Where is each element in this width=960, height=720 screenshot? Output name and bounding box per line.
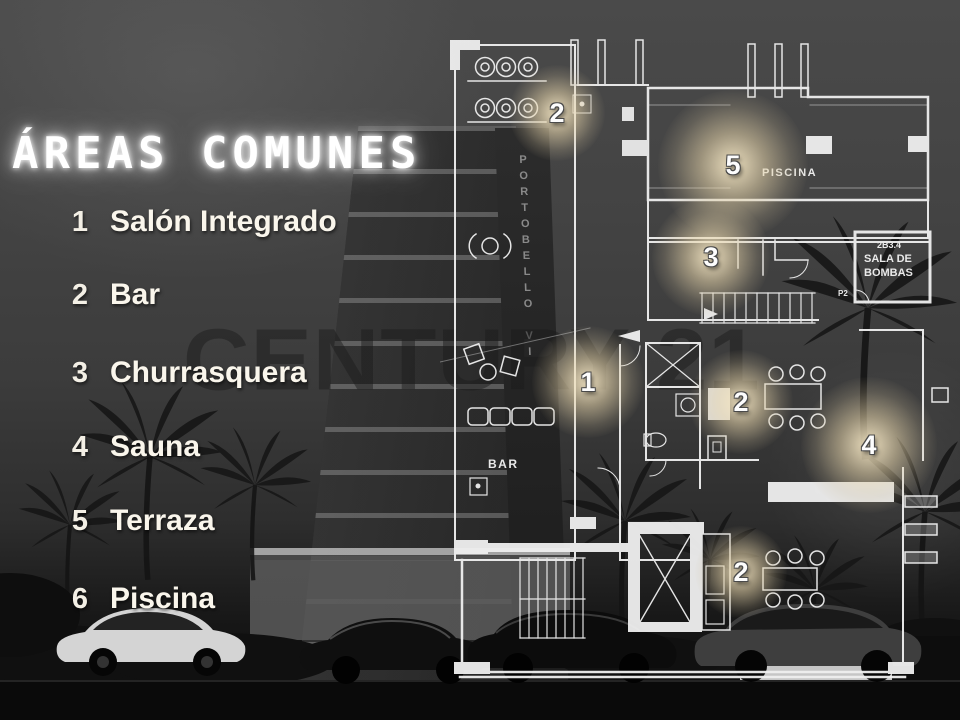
legend-label: Terraza — [110, 504, 215, 538]
legend-item-piscina: 6 Piscina — [48, 582, 215, 616]
legend-number: 3 — [48, 357, 88, 390]
slide-areas-comunes: PORTOBELLO VI — [0, 0, 960, 720]
page-title: ÁREAS COMUNES — [12, 128, 421, 179]
marker-sauna: 4 — [801, 377, 937, 513]
legend-number: 2 — [48, 279, 88, 312]
legend-label: Bar — [110, 278, 160, 312]
label-bar: BAR — [488, 457, 519, 471]
legend-number: 1 — [48, 206, 88, 239]
legend-label: Piscina — [110, 582, 215, 616]
marker-churrasquera: 3 — [652, 198, 770, 316]
marker-bar-bottom: 2 — [695, 526, 787, 618]
label-sala-number: 2B3.4 — [877, 240, 901, 250]
label-sala-line2: BOMBAS — [864, 267, 913, 279]
legend-number: 4 — [48, 431, 88, 464]
legend-item-salon: 1 Salón Integrado — [48, 205, 337, 239]
legend-number: 6 — [48, 583, 88, 616]
legend-number: 5 — [48, 505, 88, 538]
marker-salon-integrado: 1 — [532, 326, 644, 438]
label-sala-line1: SALA DE — [864, 253, 912, 265]
legend-label: Salón Integrado — [110, 205, 337, 239]
legend-label: Sauna — [110, 430, 200, 464]
legend-item-sauna: 4 Sauna — [48, 430, 200, 464]
legend-item-bar: 2 Bar — [48, 278, 160, 312]
marker-bar-top: 2 — [509, 65, 605, 161]
legend-label: Churrasquera — [110, 356, 307, 390]
legend-item-churrasquera: 3 Churrasquera — [48, 356, 307, 390]
marker-bar-mid: 2 — [689, 350, 793, 454]
legend-item-terraza: 5 Terraza — [48, 504, 215, 538]
label-p2: P2 — [838, 289, 848, 298]
